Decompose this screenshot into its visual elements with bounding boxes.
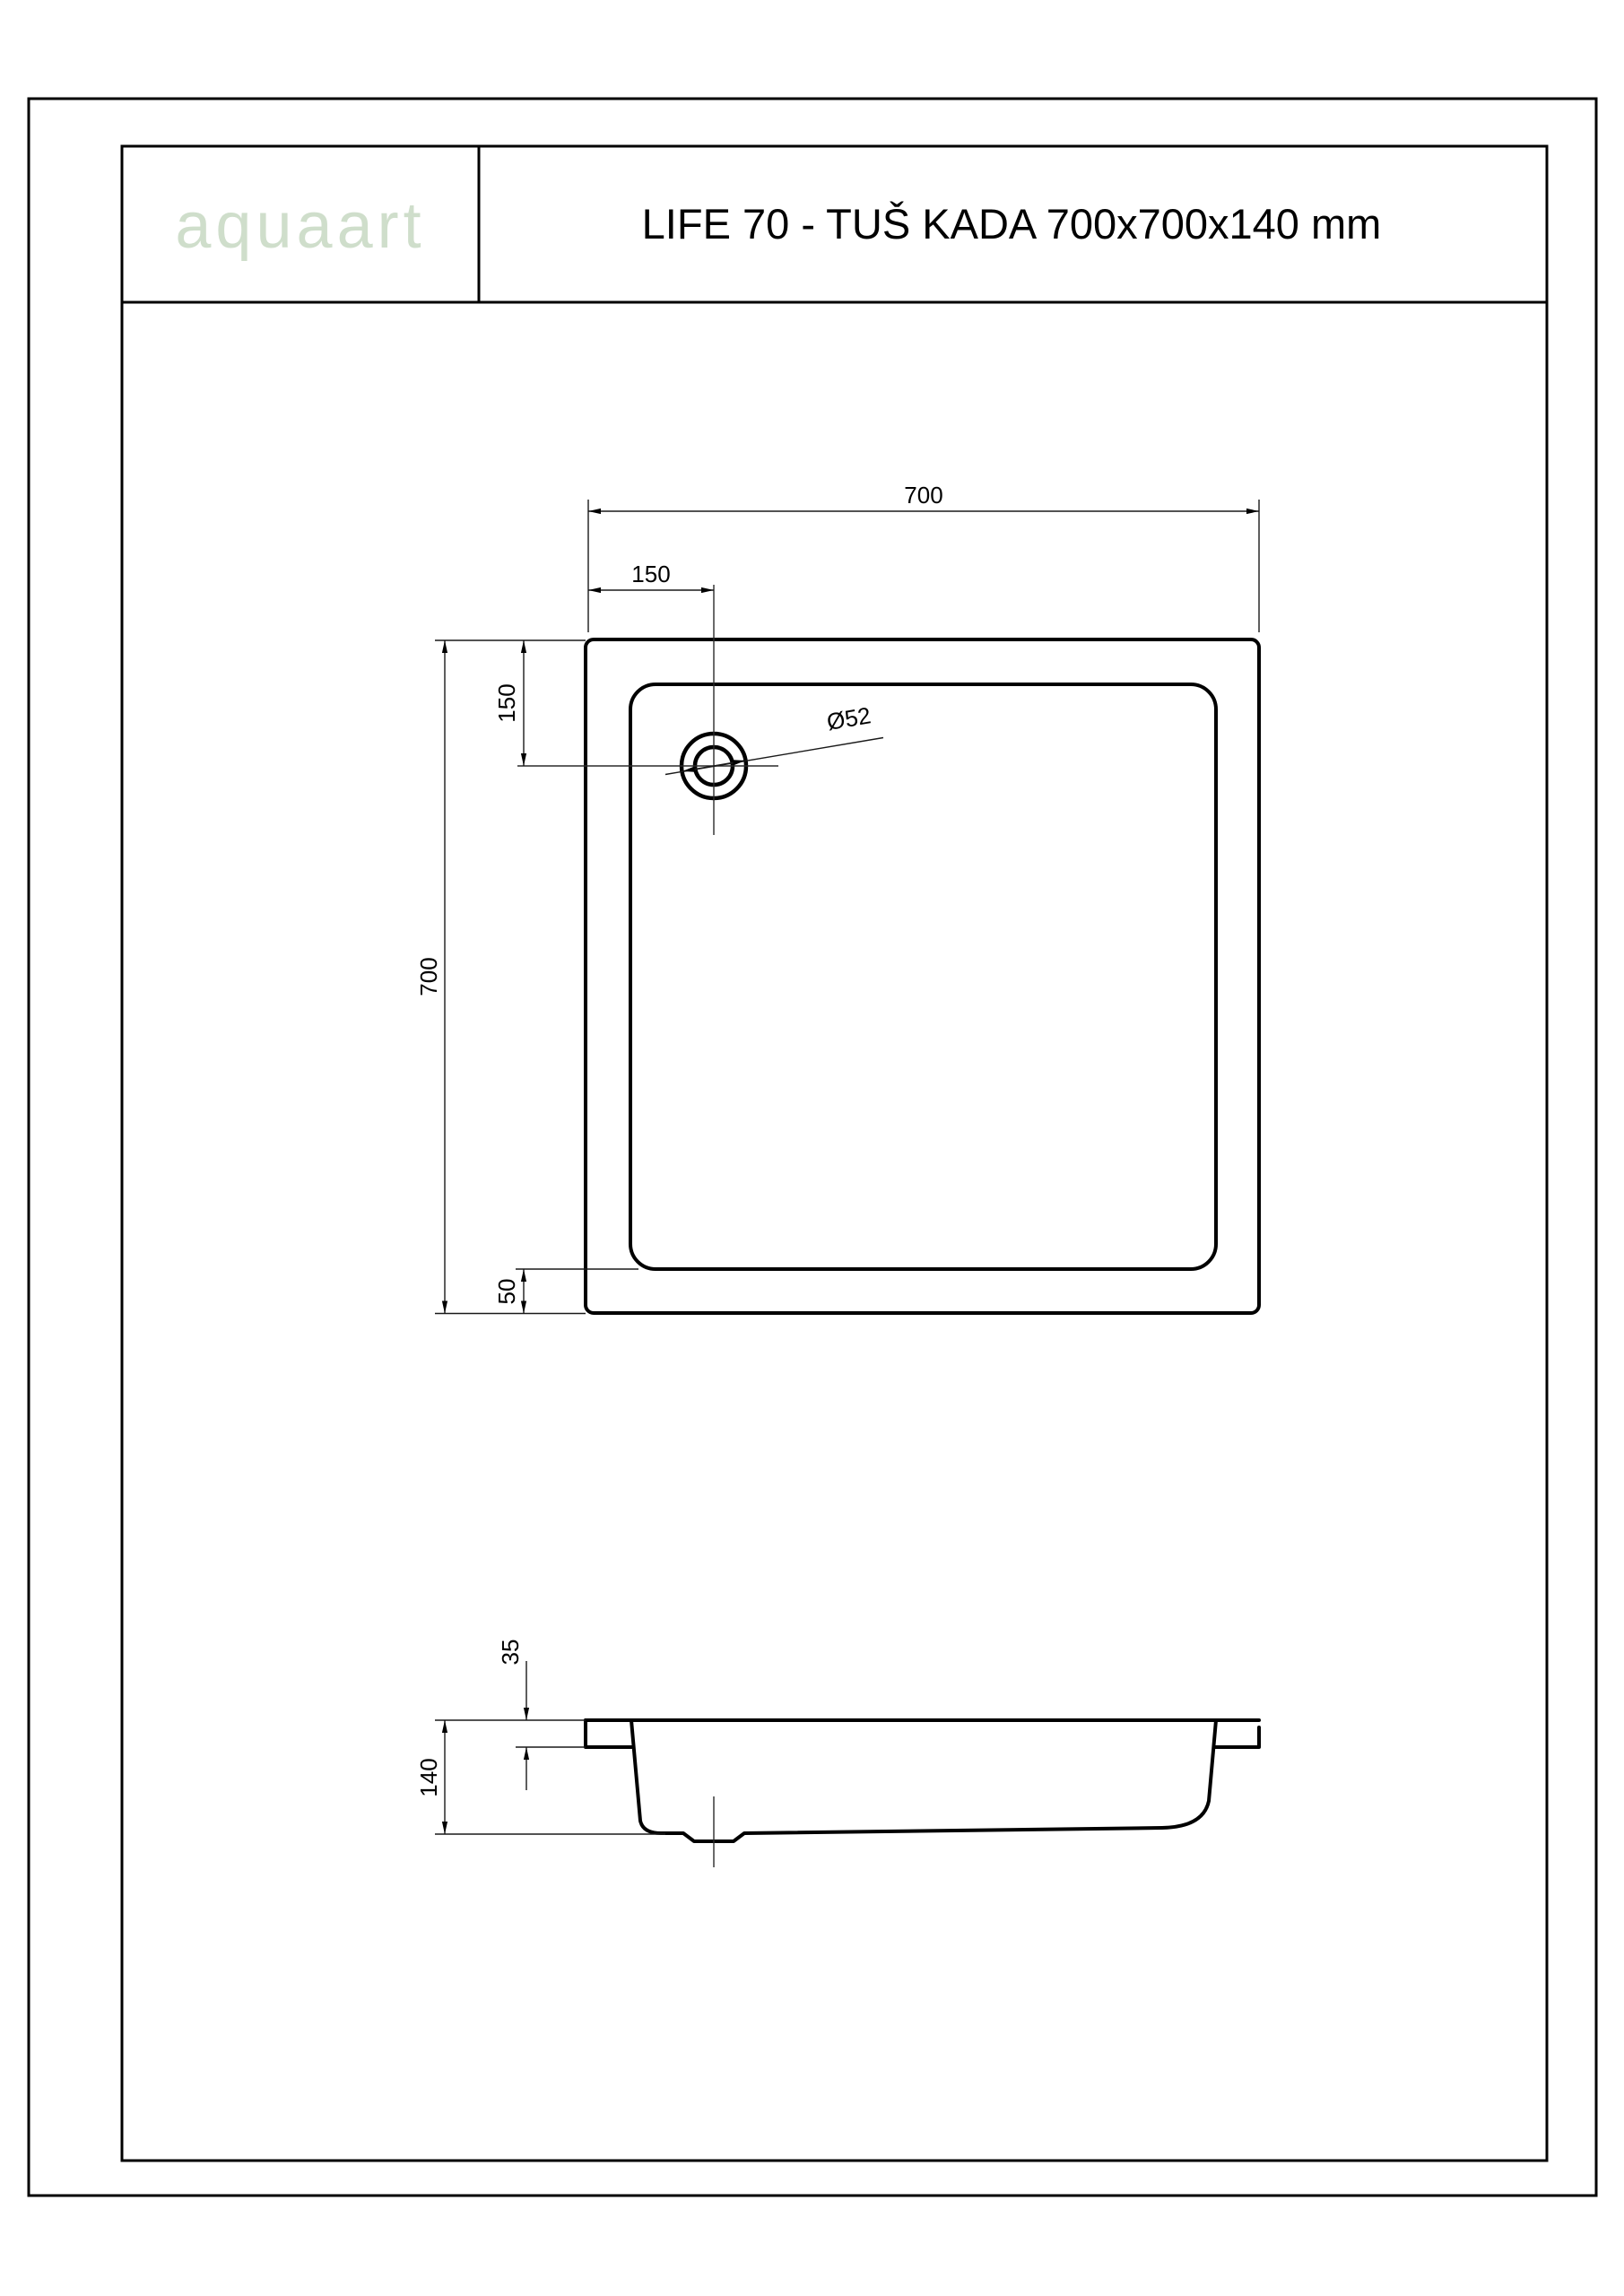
diameter-arrow-right <box>714 761 745 766</box>
page-borders <box>29 99 1596 2196</box>
top-view-extension-lines <box>435 500 1259 1314</box>
dim-height-700: 700 <box>415 640 445 1314</box>
dim-drain-offset-y-label: 150 <box>493 683 520 722</box>
dim-drain-diameter: Ø52 <box>825 701 873 735</box>
dim-rim-depth-35: 35 <box>497 1639 526 1790</box>
page-title: LIFE 70 - TUŠ KADA 700x700x140 mm <box>642 200 1382 248</box>
spec-sheet-page: aquaart LIFE 70 - TUŠ KADA 700x700x140 m… <box>0 0 1624 2296</box>
diameter-arrow-left <box>682 766 714 771</box>
tray-outer-edge <box>586 639 1259 1313</box>
dim-drain-offset-x-label: 150 <box>631 561 670 587</box>
technical-drawing: aquaart LIFE 70 - TUŠ KADA 700x700x140 m… <box>0 0 1624 2296</box>
dim-bottom-inset-50: 50 <box>493 1269 524 1314</box>
logo-text: aquaart <box>175 190 425 262</box>
dim-total-height-140: 140 <box>415 1720 445 1834</box>
dim-drain-offset-y-150: 150 <box>493 640 524 766</box>
top-view: Ø52 700 150 700 150 <box>415 482 1259 1314</box>
dim-rim-depth-label: 35 <box>497 1639 524 1665</box>
dim-drain-offset-x-150: 150 <box>588 561 714 590</box>
side-view-extension-lines <box>435 1720 665 1834</box>
dim-width-label: 700 <box>904 482 942 509</box>
side-view: 140 35 <box>415 1639 1259 1867</box>
side-body-profile <box>631 1720 1216 1841</box>
dim-width-700: 700 <box>588 482 1259 511</box>
header: aquaart LIFE 70 - TUŠ KADA 700x700x140 m… <box>122 146 1381 302</box>
inner-content-border <box>122 146 1547 2161</box>
side-left-flange <box>586 1720 632 1747</box>
tray-inner-basin-edge <box>630 684 1216 1269</box>
outer-page-border <box>29 99 1596 2196</box>
dim-height-label: 700 <box>415 957 442 996</box>
dim-bottom-inset-label: 50 <box>493 1279 520 1305</box>
side-right-flange <box>1214 1727 1259 1747</box>
dim-total-height-label: 140 <box>415 1758 442 1796</box>
